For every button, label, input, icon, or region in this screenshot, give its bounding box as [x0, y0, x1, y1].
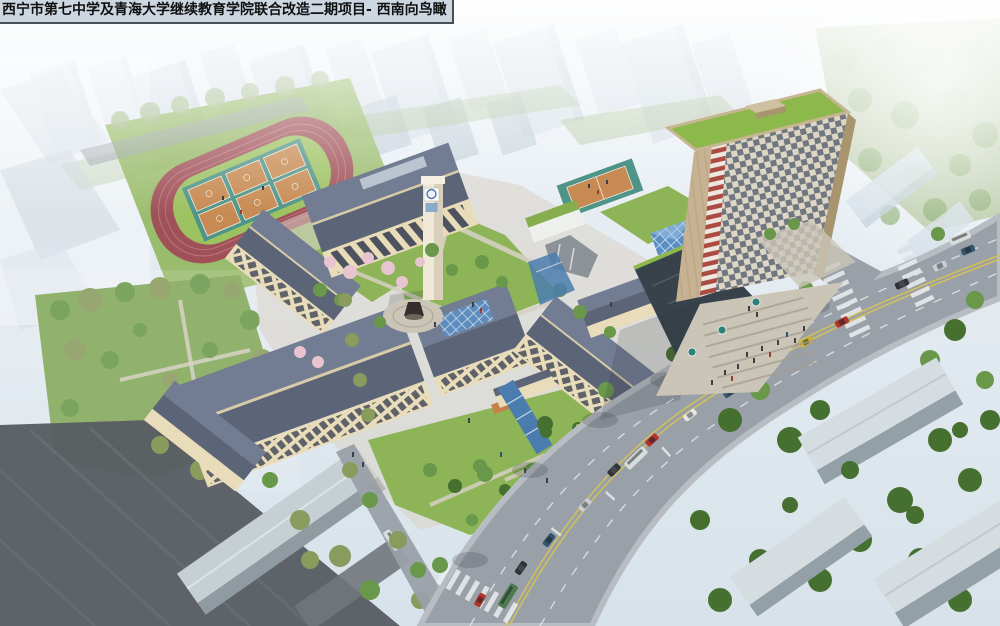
statue-plaza: [383, 299, 443, 333]
aerial-rendering: [0, 0, 1000, 626]
plaza-umbrella: [718, 326, 726, 334]
title-text: 西宁市第七中学及青海大学继续教育学院联合改造二期项目- 西南向鸟瞰: [2, 2, 447, 18]
plaza-umbrella: [688, 348, 696, 356]
plaza-umbrella: [752, 298, 760, 306]
title-label: 西宁市第七中学及青海大学继续教育学院联合改造二期项目- 西南向鸟瞰: [0, 0, 454, 24]
